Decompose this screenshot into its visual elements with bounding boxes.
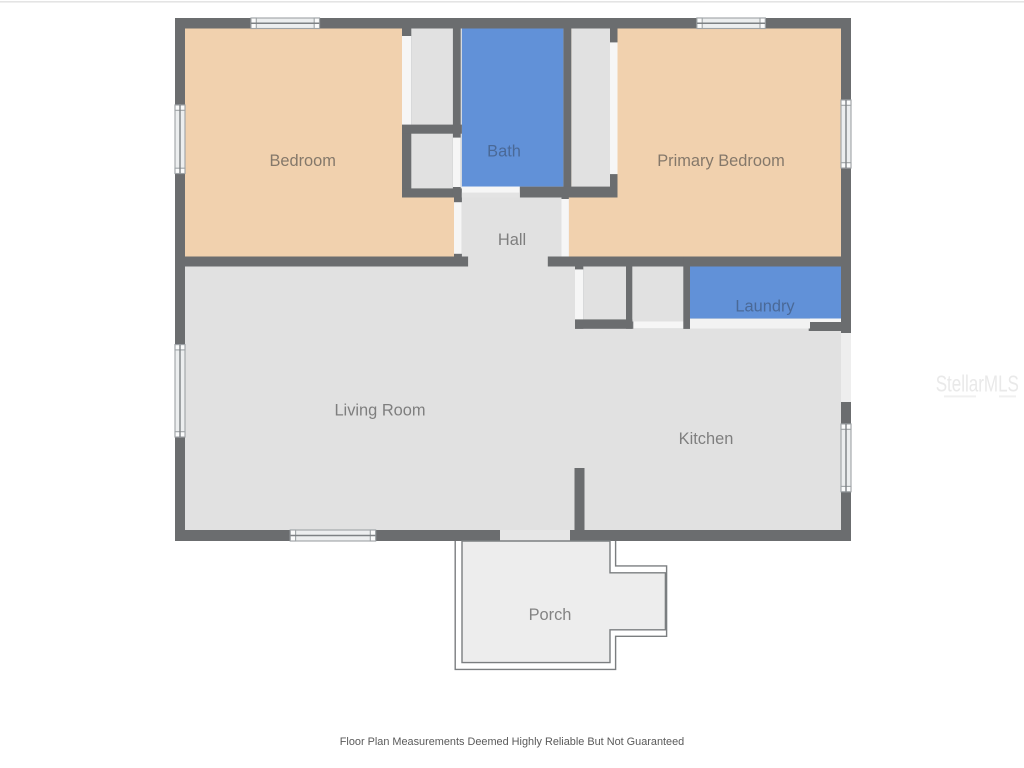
svg-text:Floor Plan Measurements Deemed: Floor Plan Measurements Deemed Highly Re…	[340, 736, 684, 748]
svg-text:Porch: Porch	[529, 606, 572, 624]
svg-text:Laundry: Laundry	[735, 298, 795, 316]
svg-text:Primary Bedroom: Primary Bedroom	[657, 152, 785, 170]
svg-text:Hall: Hall	[498, 231, 526, 249]
svg-text:Bath: Bath	[487, 142, 521, 160]
svg-text:Bedroom: Bedroom	[269, 152, 336, 170]
svg-text:Kitchen: Kitchen	[679, 430, 734, 448]
svg-text:Living Room: Living Room	[334, 402, 425, 420]
svg-text:StellarMLS: StellarMLS	[936, 372, 1019, 397]
